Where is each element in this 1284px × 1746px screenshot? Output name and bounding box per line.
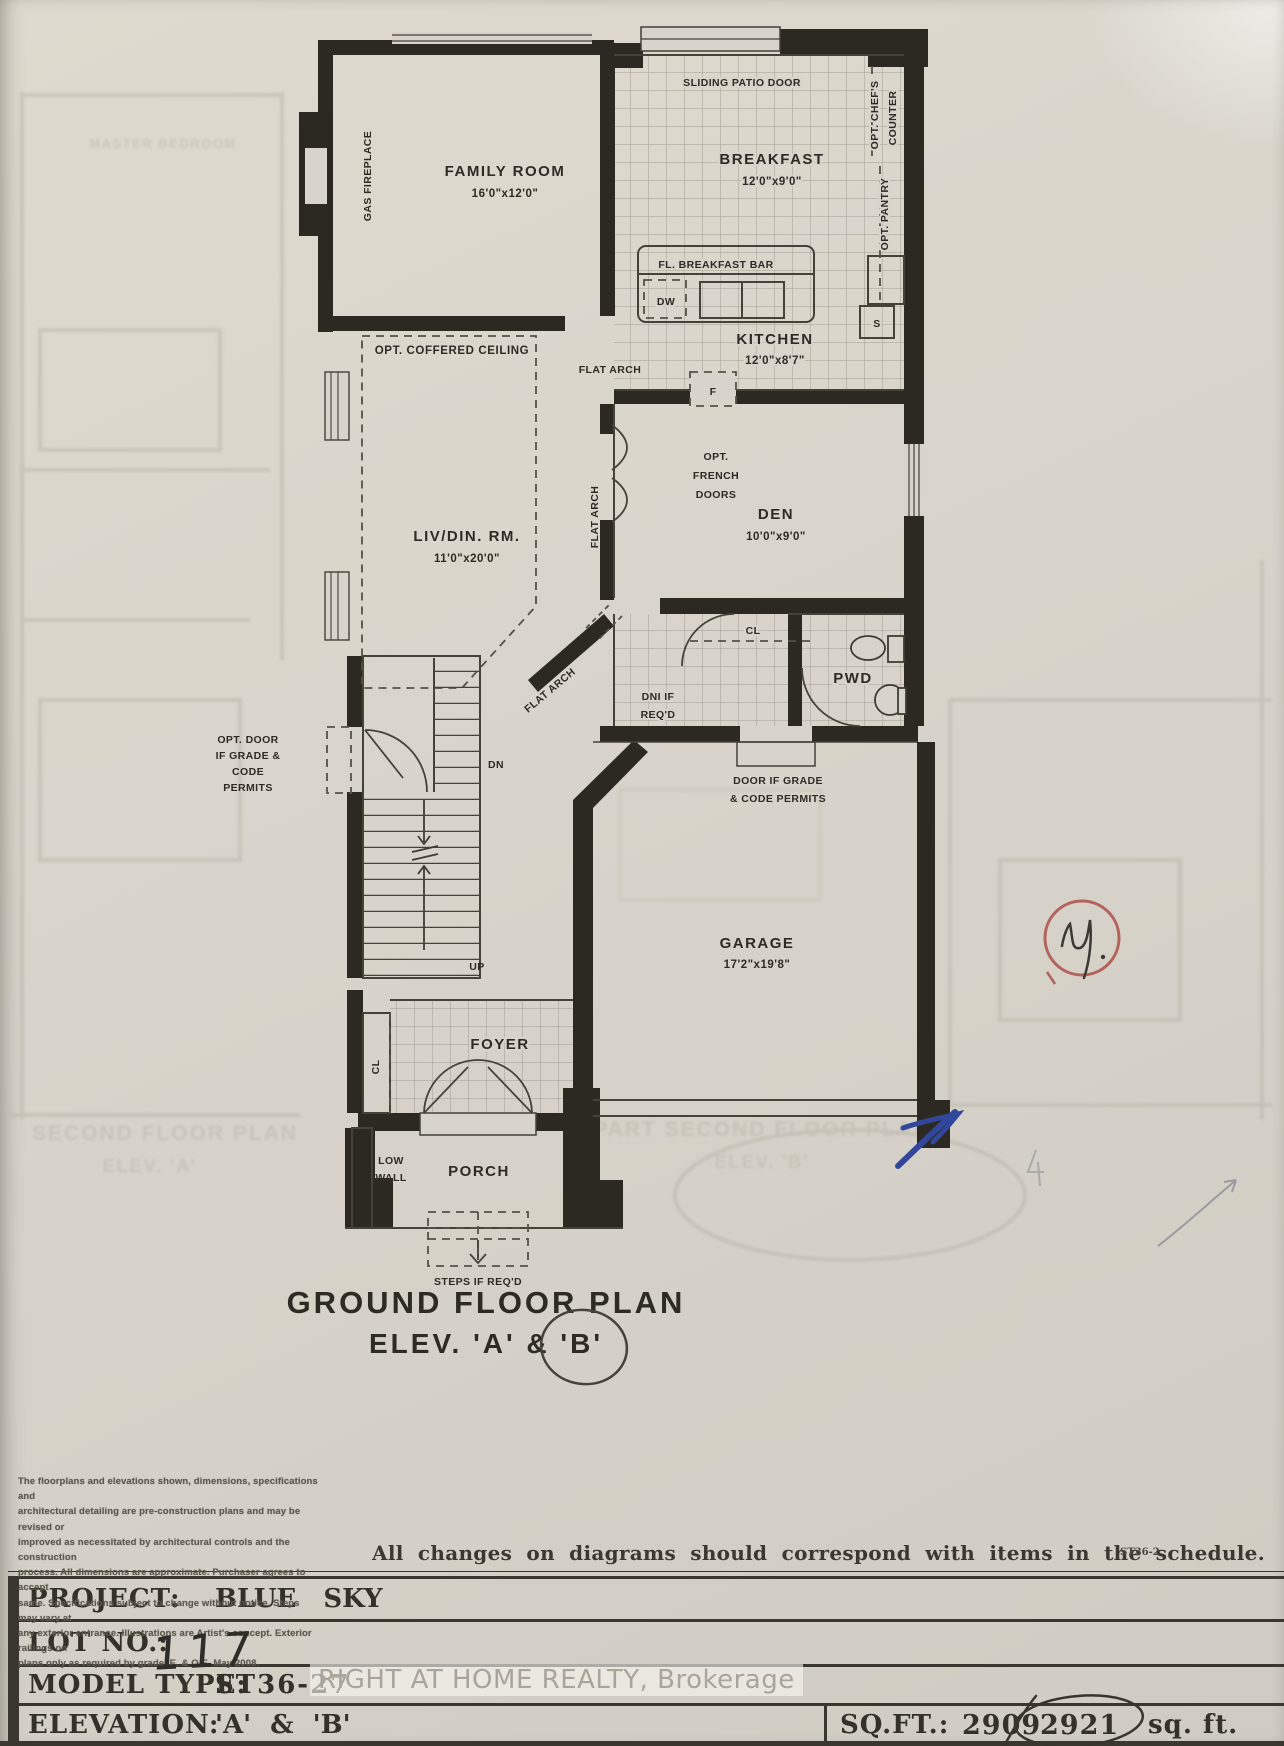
brokerage-watermark: RIGHT AT HOME REALTY, Brokerage — [310, 1664, 803, 1696]
disclaimer-line: same. Specifications subject to change w… — [18, 1596, 318, 1626]
schedule-value-sqft-suffix: sq. ft. — [1148, 1710, 1238, 1740]
disclaimer-line: The floorplans and elevations shown, dim… — [18, 1474, 318, 1504]
schedule-value-sqft-1: 2909 — [962, 1710, 1041, 1741]
schedule-value-sqft-2: 2921 — [1040, 1710, 1119, 1741]
scanned-floorplan-page: The floorplans and elevations shown, dim… — [0, 0, 1284, 1746]
schedule-value-elevation: 'A' & 'B' — [215, 1710, 351, 1740]
handwritten-lot-number: 117 — [150, 1621, 259, 1681]
disclaimer-line: improved as necessitated by architectura… — [18, 1535, 318, 1565]
table-row-border — [19, 1703, 1284, 1706]
table-col-divider — [824, 1706, 827, 1741]
schedule-label-sqft: SQ.FT.: — [840, 1710, 949, 1740]
table-border-bottom — [0, 1741, 1284, 1746]
disclaimer-line: process. All dimensions are approximate.… — [18, 1565, 318, 1595]
schedule-label-elevation: ELEVATION: — [28, 1710, 219, 1740]
disclaimer-line: architectural detailing are pre-construc… — [18, 1504, 318, 1534]
sheet-code: ST36-2 — [1120, 1547, 1160, 1558]
